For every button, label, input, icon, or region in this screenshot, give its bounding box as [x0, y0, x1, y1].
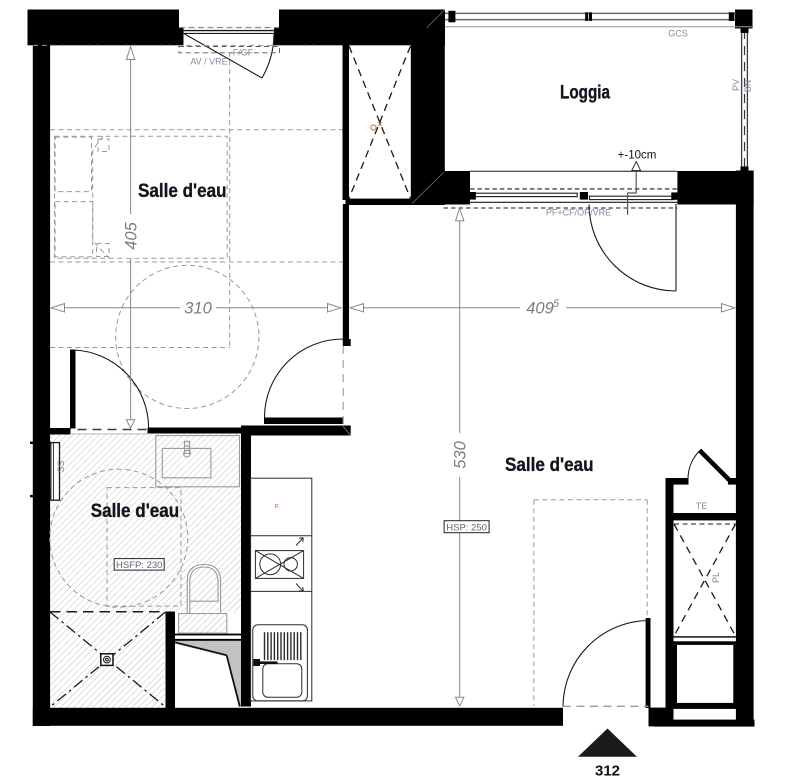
svg-text:PV: PV — [731, 79, 741, 91]
svg-text:312: 312 — [595, 763, 620, 780]
svg-text:5: 5 — [553, 298, 560, 310]
svg-text:F.: F. — [275, 505, 280, 511]
svg-text:530: 530 — [452, 440, 470, 468]
svg-text:PL: PL — [711, 572, 721, 583]
svg-text:BN: BN — [743, 80, 753, 93]
svg-text:Salle d'eau: Salle d'eau — [91, 501, 180, 522]
svg-text:F/GF: F/GF — [233, 48, 254, 58]
svg-text:AV / VRE: AV / VRE — [190, 57, 227, 67]
svg-text:409: 409 — [526, 300, 554, 318]
svg-text:SS: SS — [56, 460, 66, 472]
svg-text:HSP: 250: HSP: 250 — [446, 522, 487, 533]
svg-text:Salle d'eau: Salle d'eau — [505, 455, 594, 476]
svg-text:310: 310 — [184, 300, 212, 318]
svg-text:TE: TE — [696, 501, 708, 511]
svg-text:405: 405 — [122, 221, 140, 249]
svg-text:+-10cm: +-10cm — [618, 150, 657, 162]
svg-text:HSFP: 230: HSFP: 230 — [116, 560, 162, 571]
svg-text:x: x — [378, 121, 382, 128]
svg-text:Salle d'eau: Salle d'eau — [138, 181, 227, 202]
svg-text:PF+CF/OP/VRE: PF+CF/OP/VRE — [546, 208, 611, 218]
svg-text:GCS: GCS — [668, 29, 688, 39]
svg-text:Loggia: Loggia — [560, 83, 610, 104]
